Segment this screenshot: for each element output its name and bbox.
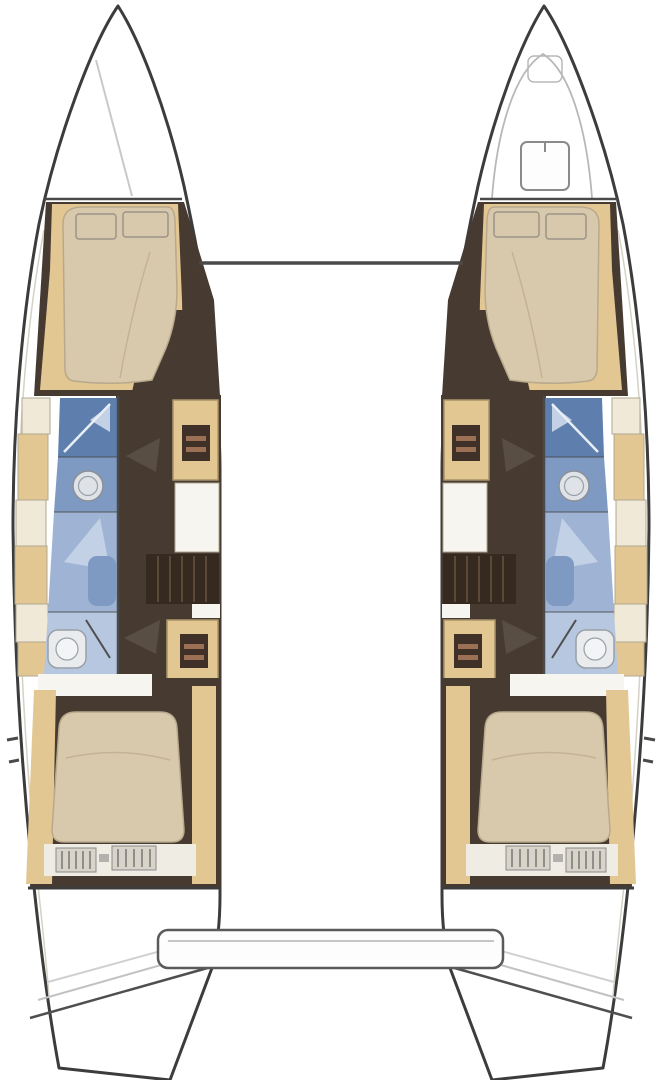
stair-hatch bbox=[180, 634, 208, 668]
toilet-seat bbox=[584, 638, 606, 660]
aft-platform bbox=[158, 930, 503, 968]
locker bbox=[22, 398, 50, 434]
double-berth bbox=[52, 712, 184, 842]
locker bbox=[16, 604, 48, 642]
pillow bbox=[546, 214, 586, 239]
counter-small bbox=[192, 604, 220, 618]
starboard-rubrail-marks bbox=[643, 738, 655, 762]
stair-hatch-stripe bbox=[456, 447, 476, 452]
locker bbox=[16, 500, 46, 546]
stair-hatch-stripe bbox=[458, 644, 478, 649]
catamaran-floor-plan bbox=[0, 0, 662, 1080]
locker bbox=[15, 546, 47, 604]
starboard-aft-cabin bbox=[441, 674, 636, 888]
locker bbox=[614, 434, 644, 500]
port-outboard-lockers bbox=[15, 398, 50, 676]
worktop bbox=[175, 483, 219, 552]
washbasin bbox=[73, 471, 103, 501]
floor-plan-canvas bbox=[0, 0, 662, 1080]
washbasin bbox=[559, 471, 589, 501]
stair-hatch-stripe bbox=[186, 447, 206, 452]
port-aft-cabin bbox=[26, 674, 221, 888]
port-hull bbox=[7, 6, 221, 1080]
port-rubrail-marks bbox=[7, 738, 19, 762]
pillow bbox=[76, 214, 116, 239]
port-forward-cabin bbox=[34, 202, 220, 396]
stair-hatch-stripe bbox=[184, 644, 204, 649]
stair-hatch bbox=[182, 425, 210, 461]
stair-hatch-stripe bbox=[456, 436, 476, 441]
pillow bbox=[494, 212, 539, 237]
grille-latch bbox=[553, 854, 563, 862]
stair-hatch-stripe bbox=[186, 436, 206, 441]
starboard-outboard-lockers bbox=[612, 398, 647, 676]
toilet-seat bbox=[56, 638, 78, 660]
locker bbox=[614, 604, 646, 642]
stair-hatch bbox=[454, 634, 482, 668]
locker bbox=[615, 546, 647, 604]
counter-small bbox=[442, 604, 470, 618]
shower-seat bbox=[546, 556, 574, 606]
locker bbox=[18, 434, 48, 500]
double-berth bbox=[478, 712, 610, 842]
starboard-forward-cabin bbox=[442, 202, 628, 396]
starboard-hull bbox=[441, 6, 655, 1080]
locker bbox=[616, 500, 646, 546]
locker bbox=[612, 398, 640, 434]
stair-hatch bbox=[452, 425, 480, 461]
worktop bbox=[443, 483, 487, 552]
locker bbox=[614, 642, 644, 676]
grille-latch bbox=[99, 854, 109, 862]
stair-hatch-stripe bbox=[184, 655, 204, 660]
shower-seat bbox=[88, 556, 116, 606]
stair-hatch-stripe bbox=[458, 655, 478, 660]
pillow bbox=[123, 212, 168, 237]
locker bbox=[18, 642, 48, 676]
